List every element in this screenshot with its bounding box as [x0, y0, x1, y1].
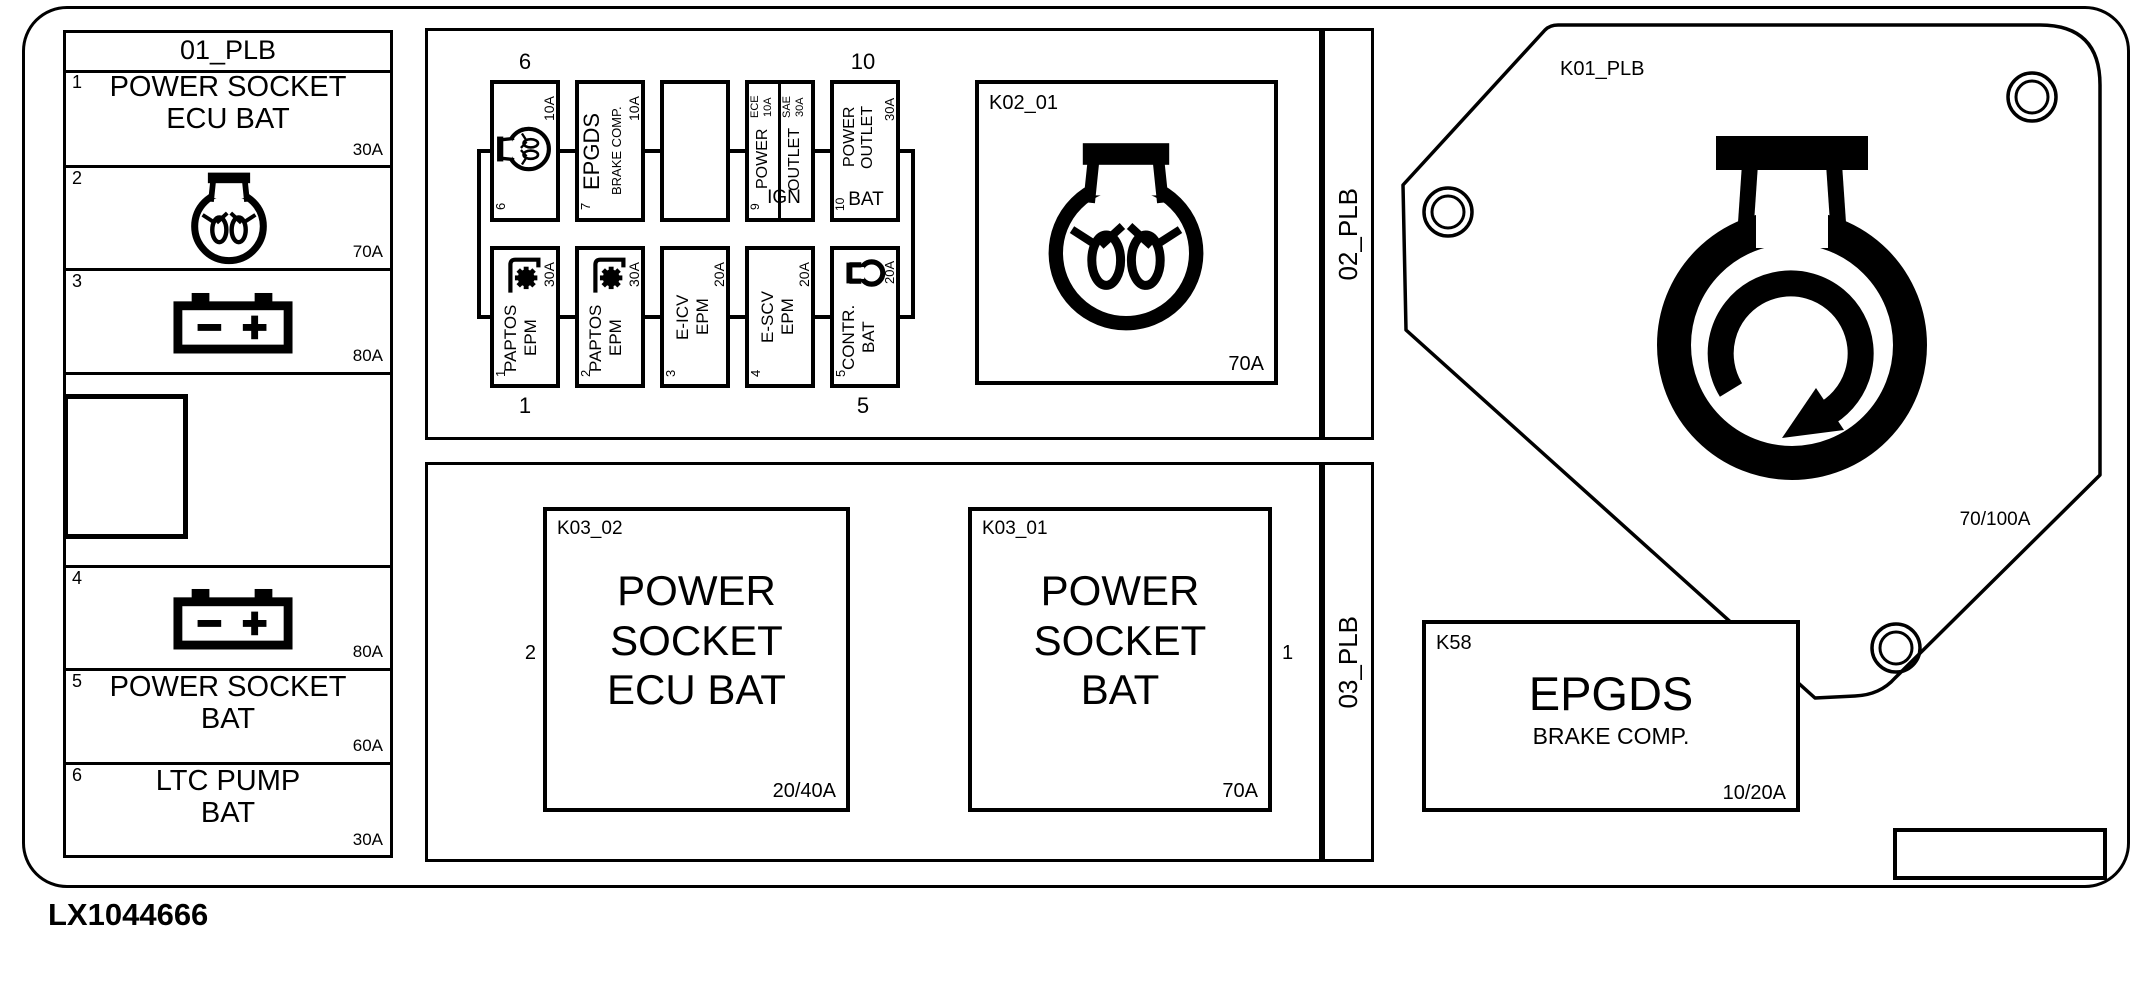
panel-02-side-strip: 02_PLB [1322, 28, 1374, 440]
pto-gear-icon [587, 252, 629, 294]
slot-number: 3 [72, 272, 82, 292]
fuse-label: OUTLET [860, 86, 876, 188]
fuse-label: BAT [860, 292, 877, 382]
relay-label: EPGDS [1426, 668, 1796, 720]
panel-01-title: 01_PLB [66, 36, 390, 66]
bus-line [477, 149, 481, 319]
relay-sublabel: BRAKE COMP. [1426, 724, 1796, 749]
row-divider [63, 268, 393, 271]
amp-rating: 20/40A [773, 780, 836, 802]
fuse-4: E-SCV EPM 20A 4 [745, 246, 815, 388]
panel-02-title: 02_PLB [1333, 188, 1364, 281]
amp-rating: 30A [63, 141, 383, 160]
slot-label: LTC PUMP BAT [69, 766, 387, 830]
row-divider [63, 565, 393, 568]
fuse-label: EPM [694, 252, 711, 382]
amp-rating: 20A [797, 252, 811, 298]
relay-label: POWER SOCKET BAT [972, 566, 1268, 715]
fuse-2: 30A PAPTOS EPM 2 [575, 246, 645, 388]
amp-rating: 30A [627, 252, 641, 298]
callout-number: 5 [833, 394, 893, 418]
fuse-slot-blank [660, 80, 730, 222]
amp-rating: 70A [63, 243, 383, 262]
amp-rating: 30A [883, 86, 896, 132]
relay-k03-01: K03_01 POWER SOCKET BAT 70A [968, 507, 1272, 812]
amp-rating: 60A [63, 737, 383, 756]
amp-rating: 30A [542, 252, 556, 298]
fuse-9: ECE 10A POWER SAE 30A OUTLET IGN 9 [745, 80, 815, 222]
plate-id: K01_PLB [1560, 58, 1645, 80]
fuse-number: 4 [749, 362, 762, 384]
figure-code: LX1044666 [48, 898, 208, 932]
amp-rating: 70A [1222, 780, 1258, 802]
amp-rating: 30A [63, 831, 383, 850]
lamp-icon [1036, 136, 1216, 334]
fuse-6: 10A 6 [490, 80, 560, 222]
bus-line [911, 149, 915, 319]
fuse-number: 5 [834, 362, 847, 384]
fuse-number: 9 [749, 196, 761, 218]
amp-rating: 80A [63, 347, 383, 366]
pto-gear-icon [502, 252, 544, 294]
callout-number: 10 [833, 50, 893, 74]
fuse-number: 10 [834, 190, 846, 218]
panel-03-side-strip: 03_PLB [1322, 462, 1374, 862]
fuse-label: OUTLET [787, 124, 803, 194]
amp-rating: 80A [63, 643, 383, 662]
fuse-number: 2 [579, 362, 592, 384]
amp-rating: 10A [627, 86, 641, 132]
row-divider [63, 372, 393, 375]
amp-rating: 20A [712, 252, 726, 298]
lamp-icon [495, 121, 553, 177]
slot-number: 4 [72, 569, 82, 589]
amp-rating: 70A [1228, 353, 1264, 375]
fuse-number: 6 [494, 194, 507, 218]
relay-k58: K58 EPGDS BRAKE COMP. 10/20A [1422, 620, 1800, 812]
fuse-suffix: IGN [757, 188, 811, 209]
relay-label: POWER SOCKET ECU BAT [547, 566, 846, 715]
fuse-label: POWER [755, 124, 771, 194]
callout-number: 2 [500, 642, 536, 664]
amp-rating: 10/20A [1723, 782, 1786, 804]
fuse-number: 3 [664, 362, 677, 384]
amp-rating: 20A [883, 250, 896, 294]
fuse-label: EPM [607, 294, 624, 382]
relay-k03-02: K03_02 POWER SOCKET ECU BAT 20/40A [543, 507, 850, 812]
callout-number: 1 [495, 394, 555, 418]
relay-id: K03_02 [557, 519, 623, 540]
fuse-7: EPGDS BRAKE COMP. 10A 7 [575, 80, 645, 222]
fuse-suffix: BAT [840, 190, 892, 211]
amp-rating: 70/100A [1920, 510, 2070, 531]
blank-label-box [1893, 828, 2107, 880]
panel-03-title: 03_PLB [1333, 616, 1364, 709]
battery-icon [172, 586, 294, 651]
slot-label: POWER SOCKET BAT [69, 672, 387, 736]
battery-icon [172, 290, 294, 355]
fuse-label: POWER [842, 86, 858, 188]
fuse-5: 20A CONTR. BAT 5 [830, 246, 900, 388]
relay-id: K58 [1436, 632, 1472, 654]
relay-id: K03_01 [982, 519, 1048, 540]
slot-label: POWER SOCKET ECU BAT [69, 72, 387, 136]
callout-number: 1 [1282, 642, 1318, 664]
k01-plb-plate [1392, 18, 2112, 718]
slot-number: 2 [72, 169, 82, 189]
fuse-3: E-ICV EPM 20A 3 [660, 246, 730, 388]
callout-number: 6 [495, 50, 555, 74]
fuse-10: POWER OUTLET 30A BAT 10 [830, 80, 900, 222]
fuse-number: 7 [579, 194, 592, 218]
fuse-label: EPM [779, 252, 796, 382]
fuse-label: EPM [522, 294, 539, 382]
fuse-sublabel: BRAKE COMP. [610, 86, 623, 216]
fuse-box-diagram: 01_PLB 1 POWER SOCKET ECU BAT 30A 2 70A … [0, 0, 2138, 996]
relay-id: K02_01 [989, 92, 1058, 114]
row-divider [63, 165, 393, 168]
fuse-1: 30A PAPTOS EPM 1 [490, 246, 560, 388]
fuse-number: 1 [494, 362, 507, 384]
empty-slot-box [63, 394, 188, 539]
relay-k02-01: K02_01 70A [975, 80, 1278, 385]
